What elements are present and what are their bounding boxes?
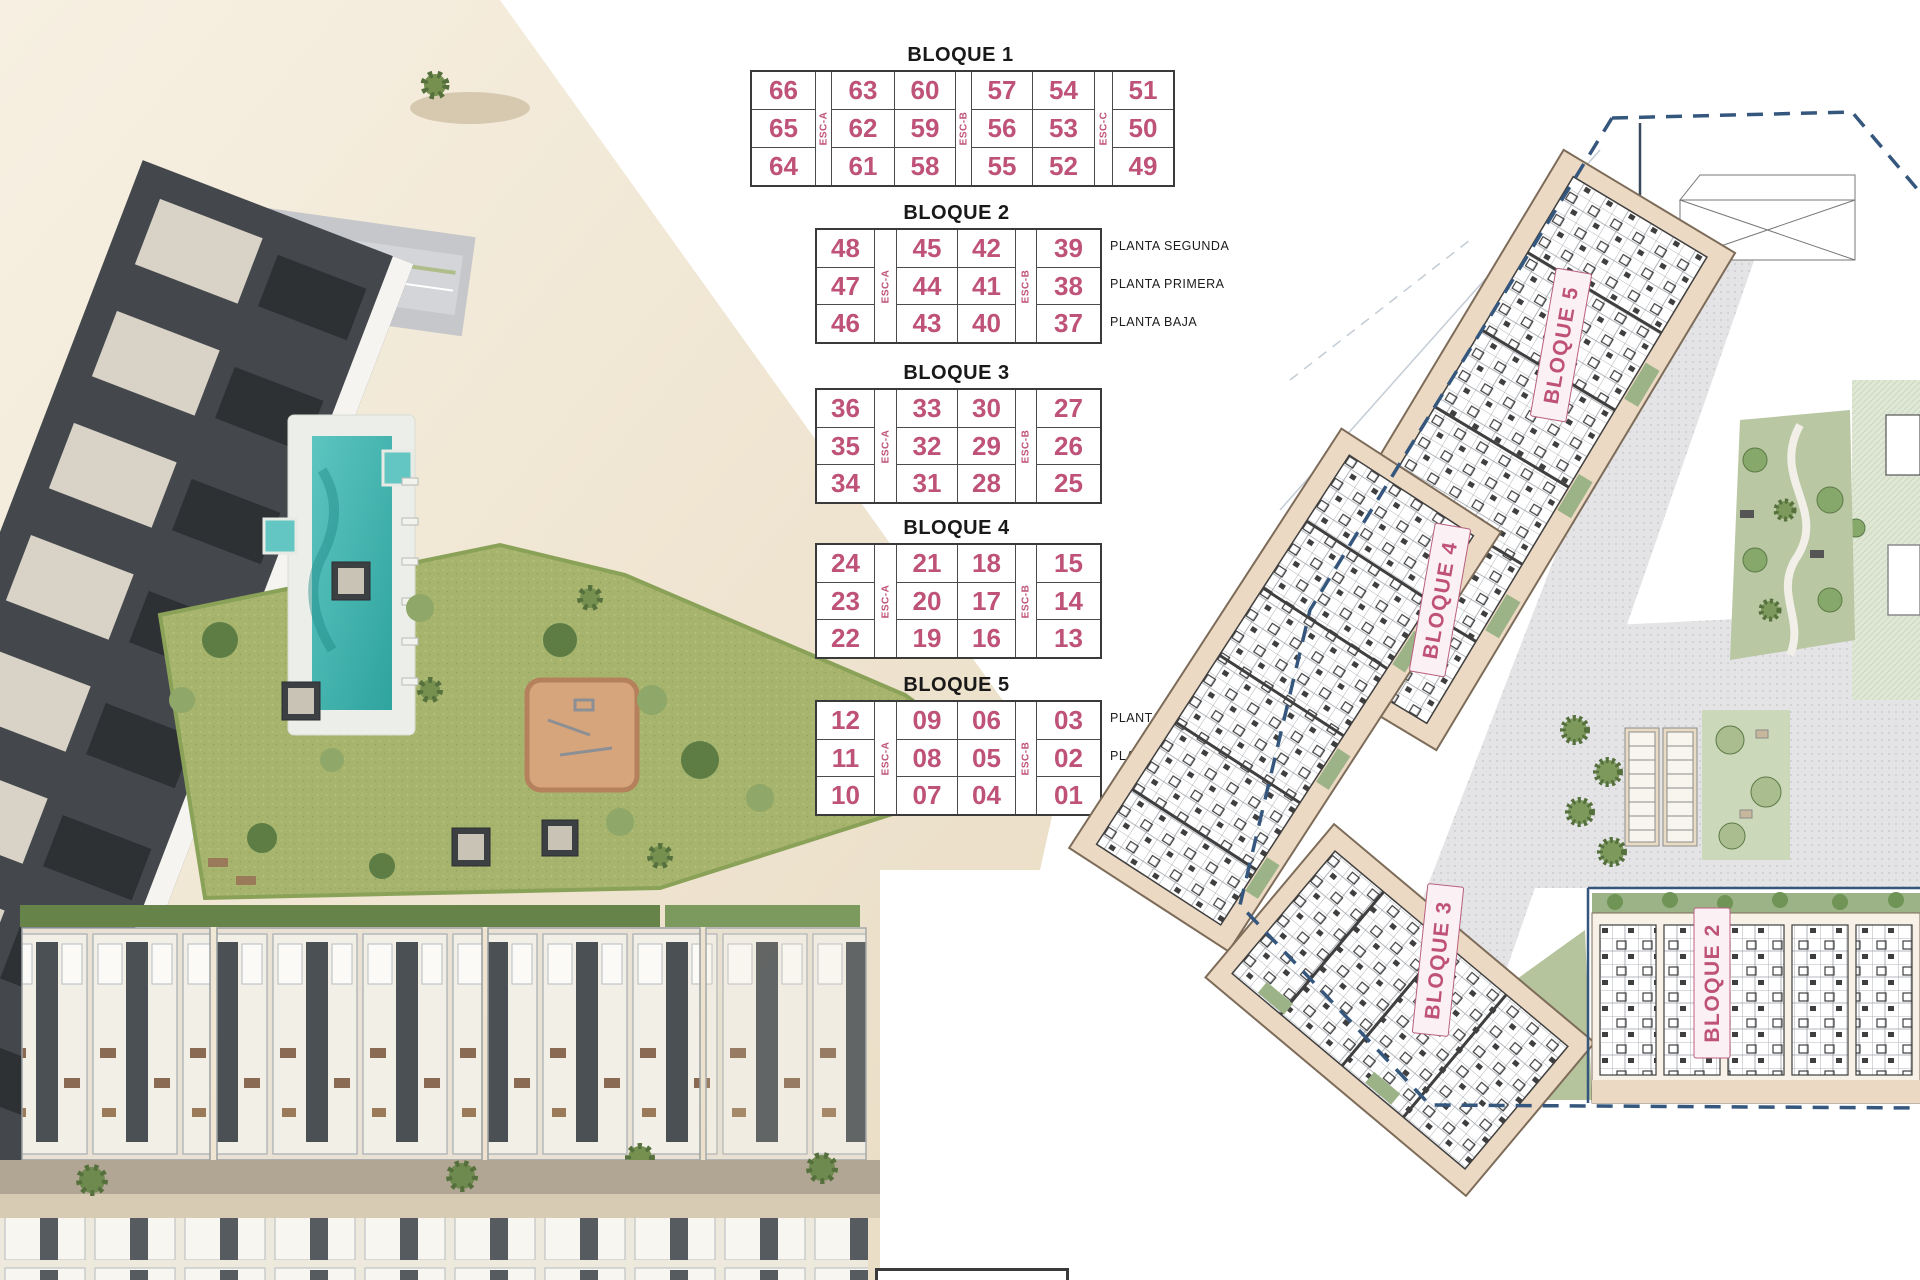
townhouse-roofs	[22, 928, 866, 1160]
unit-number: 36	[817, 390, 874, 427]
stair-label: ESC-A	[875, 702, 896, 814]
stair-label: ESC-B	[1016, 702, 1036, 814]
stair-label: ESC-B	[1016, 545, 1036, 657]
hedge-row	[20, 905, 660, 927]
svg-text:BLOQUE 2: BLOQUE 2	[1701, 923, 1724, 1042]
brochure-page: BLOQUE 166ESC-A6360ESC-B5754ESC-C5165625…	[0, 0, 1920, 1280]
unit-number: 12	[817, 702, 874, 739]
unit-number: 61	[832, 148, 894, 185]
unit-number: 64	[752, 148, 815, 185]
unit-number: 16	[958, 620, 1015, 657]
kids-pool	[264, 519, 296, 553]
unit-number: 41	[958, 268, 1015, 305]
unit-number: 33	[897, 390, 957, 427]
unit-number: 24	[817, 545, 874, 582]
unit-number: 55	[972, 148, 1032, 185]
unit-number: 57	[972, 72, 1032, 109]
stair-label: ESC-B	[956, 72, 971, 185]
unit-number: 30	[958, 390, 1015, 427]
unit-number: 31	[897, 465, 957, 502]
unit-number: 46	[817, 305, 874, 342]
stair-label: ESC-B	[1016, 390, 1036, 502]
unit-number: 11	[817, 740, 874, 777]
stair-label: ESC-A	[875, 545, 896, 657]
unit-number: 43	[897, 305, 957, 342]
unit-number: 34	[817, 465, 874, 502]
unit-number: 40	[958, 305, 1015, 342]
stair-label: ESC-B	[1016, 230, 1036, 342]
unit-number: 44	[897, 268, 957, 305]
unit-number: 66	[752, 72, 815, 109]
site-floor-plan: BLOQUE 5 BLOQUE 4 BLOQUE 3 BLOQUE 2	[1040, 80, 1920, 1280]
unit-number: 21	[897, 545, 957, 582]
unit-number: 45	[897, 230, 957, 267]
unit-number: 42	[958, 230, 1015, 267]
unit-number: 47	[817, 268, 874, 305]
building-bloque-2	[1588, 888, 1920, 1103]
unit-number: 58	[895, 148, 955, 185]
unit-number: 04	[958, 777, 1015, 814]
unit-number: 35	[817, 428, 874, 465]
unit-number: 60	[895, 72, 955, 109]
unit-number: 08	[897, 740, 957, 777]
unit-number: 59	[895, 110, 955, 147]
unit-number: 28	[958, 465, 1015, 502]
unit-number: 32	[897, 428, 957, 465]
unit-number: 09	[897, 702, 957, 739]
unit-number: 10	[817, 777, 874, 814]
stair-label: ESC-A	[875, 390, 896, 502]
plan-label-bloque-2: BLOQUE 2	[1694, 908, 1730, 1058]
unit-number: 48	[817, 230, 874, 267]
stair-label: ESC-A	[816, 72, 831, 185]
unit-number: 63	[832, 72, 894, 109]
unit-number: 06	[958, 702, 1015, 739]
palm-tree	[424, 74, 446, 96]
playground	[527, 680, 637, 790]
plan-pool	[1888, 545, 1920, 615]
unit-number: 18	[958, 545, 1015, 582]
unit-number: 07	[897, 777, 957, 814]
unit-number: 22	[817, 620, 874, 657]
unit-number: 19	[897, 620, 957, 657]
stair-label: ESC-A	[875, 230, 896, 342]
lower-roof-row	[0, 1218, 868, 1280]
unit-number: 20	[897, 583, 957, 620]
unit-number: 29	[958, 428, 1015, 465]
unit-number: 17	[958, 583, 1015, 620]
unit-number: 65	[752, 110, 815, 147]
block-title: BLOQUE 1	[750, 44, 1171, 67]
unit-number: 23	[817, 583, 874, 620]
unit-number: 56	[972, 110, 1032, 147]
unit-number: 05	[958, 740, 1015, 777]
unit-number: 62	[832, 110, 894, 147]
